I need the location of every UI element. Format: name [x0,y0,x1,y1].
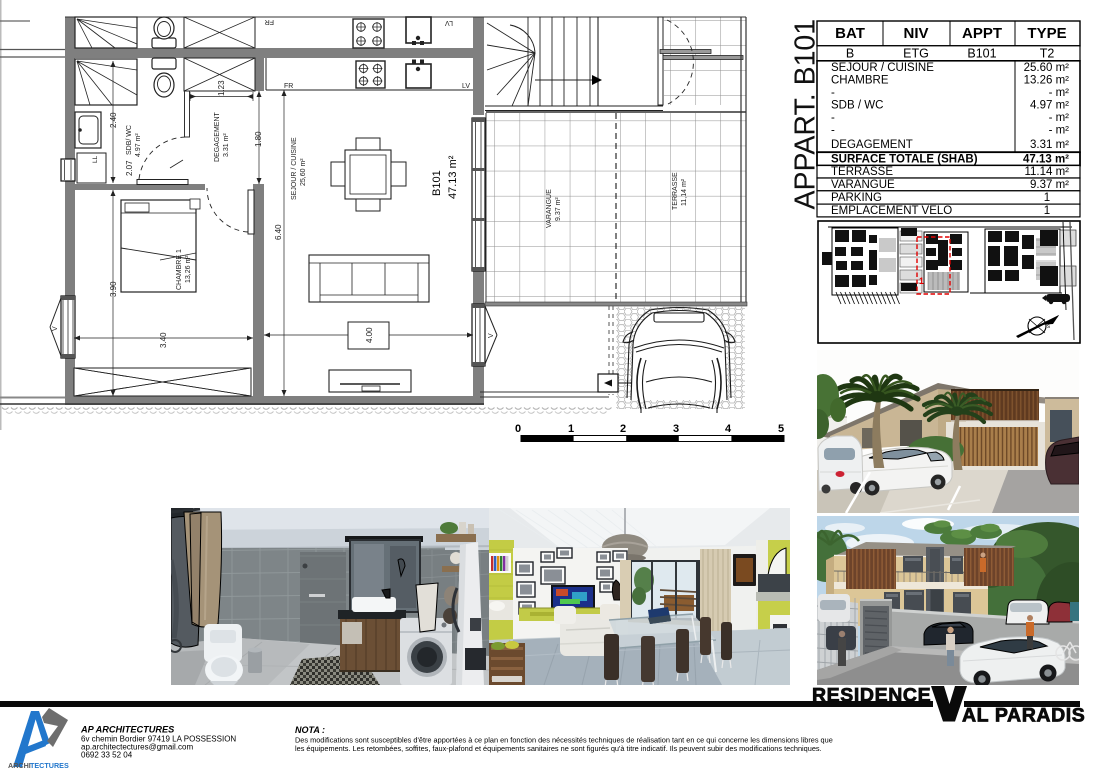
svg-text:4.97 m²: 4.97 m² [135,133,142,157]
svg-text:2: 2 [620,423,626,435]
svg-text:PARKING: PARKING [831,192,882,204]
svg-text:25,60 m²: 25,60 m² [300,158,307,186]
svg-text:TERRASSE: TERRASSE [672,172,679,210]
svg-text:3.31 m²: 3.31 m² [223,133,230,157]
svg-text:-: - [831,87,835,99]
svg-text:BAT: BAT [835,25,865,42]
svg-text:25.60 m²: 25.60 m² [1024,62,1070,74]
svg-text:s: s [1047,324,1050,330]
svg-text:ETG: ETG [903,47,929,61]
svg-text:1: 1 [919,276,924,286]
svg-text:B: B [846,47,854,61]
svg-text:FR: FR [284,83,293,90]
svg-text:47.13 m²: 47.13 m² [1023,153,1069,165]
svg-text:SEJOUR / CUISINE: SEJOUR / CUISINE [291,137,298,200]
svg-text:RESIDENCE: RESIDENCE [812,685,931,707]
svg-text:ARCHI: ARCHI [8,761,31,770]
svg-text:B101: B101 [431,170,443,196]
svg-text:- m²: - m² [1049,87,1070,99]
svg-text:APPT: APPT [962,25,1002,42]
svg-text:5: 5 [778,423,784,435]
svg-text:11.14 m²: 11.14 m² [1024,166,1069,178]
svg-text:1: 1 [1044,205,1050,217]
svg-text:TYPE: TYPE [1027,25,1066,42]
svg-text:1: 1 [1044,192,1050,204]
svg-text:V: V [52,326,59,331]
svg-text:NOTA :: NOTA : [295,725,325,735]
svg-text:CHAMBRE 1: CHAMBRE 1 [176,249,183,290]
svg-text:SDB / WC: SDB / WC [831,100,883,112]
svg-text:4.00: 4.00 [365,327,374,343]
svg-text:LV: LV [445,19,453,26]
svg-text:AP ARCHITECTURES: AP ARCHITECTURES [80,725,175,735]
svg-text:0: 0 [515,423,521,435]
svg-text:les équipements. Les retombées: les équipements. Les retombées, soffites… [295,744,822,753]
svg-text:- m²: - m² [1049,125,1070,137]
svg-text:EMPLACEMENT VELO: EMPLACEMENT VELO [831,205,952,217]
svg-text:VARANGUE: VARANGUE [831,179,895,191]
svg-text:CHAMBRE: CHAMBRE [831,75,889,87]
svg-text:3.40: 3.40 [159,332,168,348]
svg-text:1.23: 1.23 [217,80,226,96]
svg-text:TERRASSE: TERRASSE [831,166,893,178]
svg-text:LL: LL [92,155,99,163]
svg-text:SURFACE TOTALE (SHAB): SURFACE TOTALE (SHAB) [831,153,978,165]
svg-text:2.07: 2.07 [125,160,134,176]
svg-text:SDB/ WC: SDB/ WC [126,125,133,155]
svg-text:SEJOUR / CUISINE: SEJOUR / CUISINE [831,62,934,74]
svg-text:TECTURES: TECTURES [30,761,69,770]
svg-text:3.90: 3.90 [109,281,118,297]
svg-text:V: V [488,333,495,338]
svg-text:AL PARADIS: AL PARADIS [962,705,1085,727]
svg-text:6.40: 6.40 [274,224,283,240]
svg-text:DEGAGEMENT: DEGAGEMENT [214,111,221,162]
svg-text:9.37 m²: 9.37 m² [1030,179,1069,191]
svg-text:13.26 m²: 13.26 m² [1024,75,1070,87]
svg-text:- m²: - m² [1049,112,1070,124]
svg-text:9.37 m²: 9.37 m² [555,197,562,221]
svg-text:0692 33 52 04: 0692 33 52 04 [81,751,133,760]
svg-text:-: - [831,125,835,137]
svg-text:T2: T2 [1040,47,1055,61]
svg-text:1: 1 [568,423,574,435]
svg-text:11,14 m²: 11,14 m² [681,178,688,206]
svg-text:VARANGUE: VARANGUE [546,189,553,228]
svg-text:-: - [831,112,835,124]
svg-text:4.97 m²: 4.97 m² [1030,100,1069,112]
svg-text:DEGAGEMENT: DEGAGEMENT [831,139,913,151]
svg-text:2.40: 2.40 [109,112,118,128]
svg-text:FR: FR [265,18,274,25]
svg-text:47.13 m²: 47.13 m² [447,155,459,199]
svg-text:1.80: 1.80 [254,131,263,147]
svg-text:3.31 m²: 3.31 m² [1030,139,1069,151]
svg-text:LV: LV [462,83,470,90]
svg-text:3: 3 [673,423,679,435]
svg-text:NIV: NIV [903,25,928,42]
svg-text:13,26 m²: 13,26 m² [185,255,192,283]
svg-text:B101: B101 [967,47,996,61]
svg-text:4: 4 [725,423,732,435]
